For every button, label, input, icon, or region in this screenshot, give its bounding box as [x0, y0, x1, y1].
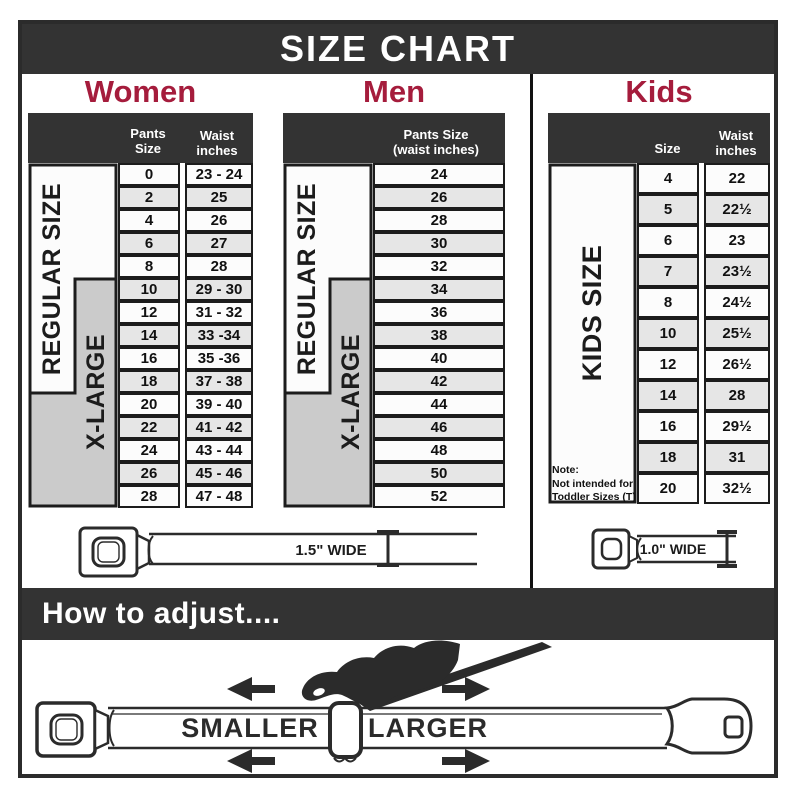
women-size-table: Pants Size Waist inches REGULAR SIZE X-L… — [28, 113, 253, 513]
x-large-label: X-LARGE — [337, 334, 365, 450]
table-row: 14 33 -34 — [118, 324, 253, 347]
size-chart-poster: SIZE CHART Women Pants Size Waist inches… — [18, 20, 778, 778]
waist-cell: 28 — [704, 380, 770, 411]
women-col-header-pants-size: Pants Size — [116, 127, 180, 157]
seatbelt-buckle-icon — [593, 530, 637, 568]
waist-cell: 27 — [185, 232, 253, 255]
waist-cell: 24½ — [704, 287, 770, 318]
table-row: 22 41 - 42 — [118, 416, 253, 439]
table-row: 28 47 - 48 — [118, 485, 253, 508]
size-cell: 7 — [637, 256, 699, 287]
belt-width-label: 1.0" WIDE — [640, 541, 707, 557]
men-col-header-pants-size: Pants Size (waist inches) — [371, 128, 501, 158]
pants-size-cell: 28 — [373, 209, 505, 232]
waist-cell: 23½ — [704, 256, 770, 287]
hand-icon — [302, 641, 460, 708]
kids-fit-labels: KIDS SIZE Note: Not intended for Toddler… — [548, 163, 637, 509]
size-cell: 10 — [637, 318, 699, 349]
pants-size-cell: 30 — [373, 232, 505, 255]
kids-table-body: KIDS SIZE Note: Not intended for Toddler… — [548, 163, 770, 509]
adult-belt-illustration: 1.5" WIDE — [58, 520, 508, 584]
waist-cell: 35 -36 — [185, 347, 253, 370]
waist-cell: 31 - 32 — [185, 301, 253, 324]
table-row: 50 — [373, 462, 505, 485]
size-cell: 16 — [637, 411, 699, 442]
pants-size-cell: 20 — [118, 393, 180, 416]
waist-cell: 26½ — [704, 349, 770, 380]
width-marker-icon — [377, 532, 399, 565]
table-row: 18 31 — [637, 442, 770, 473]
adjustment-illustration: SMALLER LARGER — [22, 640, 774, 774]
pants-size-cell: 36 — [373, 301, 505, 324]
pants-size-cell: 52 — [373, 485, 505, 508]
pants-size-cell: 46 — [373, 416, 505, 439]
waist-cell: 25 — [185, 186, 253, 209]
table-row: 10 29 - 30 — [118, 278, 253, 301]
women-table-body: REGULAR SIZE X-LARGE 0 23 - 24 2 — [28, 163, 253, 513]
table-row: 8 28 — [118, 255, 253, 278]
page-title: SIZE CHART — [280, 28, 516, 70]
pants-size-cell: 32 — [373, 255, 505, 278]
waist-cell: 37 - 38 — [185, 370, 253, 393]
size-cell: 4 — [637, 163, 699, 194]
pants-size-cell: 18 — [118, 370, 180, 393]
waist-cell: 39 - 40 — [185, 393, 253, 416]
table-row: 28 — [373, 209, 505, 232]
section-divider — [530, 74, 533, 588]
women-heading: Women — [28, 75, 253, 111]
table-row: 4 22 — [637, 163, 770, 194]
pants-size-cell: 48 — [373, 439, 505, 462]
men-table-rows: 24 26 28 30 — [373, 163, 505, 513]
pants-size-cell: 8 — [118, 255, 180, 278]
pants-size-cell: 4 — [118, 209, 180, 232]
smaller-label: SMALLER — [181, 713, 319, 743]
size-cell: 14 — [637, 380, 699, 411]
fit-range-graphic: KIDS SIZE — [548, 163, 637, 504]
seatbelt-buckle-icon — [80, 528, 149, 576]
fit-range-graphic: REGULAR SIZE X-LARGE — [28, 163, 118, 508]
men-table-body: REGULAR SIZE X-LARGE 24 26 — [283, 163, 505, 513]
table-row: 42 — [373, 370, 505, 393]
size-cell: 6 — [637, 225, 699, 256]
pants-size-cell: 26 — [373, 186, 505, 209]
table-row: 32 — [373, 255, 505, 278]
table-row: 36 — [373, 301, 505, 324]
table-row: 10 25½ — [637, 318, 770, 349]
pants-size-cell: 24 — [118, 439, 180, 462]
belt-width-label: 1.5" WIDE — [295, 542, 366, 559]
pants-size-cell: 16 — [118, 347, 180, 370]
pants-size-cell: 26 — [118, 462, 180, 485]
pants-size-cell: 40 — [373, 347, 505, 370]
table-row: 2 25 — [118, 186, 253, 209]
table-row: 4 26 — [118, 209, 253, 232]
table-row: 0 23 - 24 — [118, 163, 253, 186]
pants-size-cell: 22 — [118, 416, 180, 439]
table-row: 48 — [373, 439, 505, 462]
regular-size-label: REGULAR SIZE — [38, 183, 66, 375]
pants-size-cell: 28 — [118, 485, 180, 508]
kids-section: Kids Size Waist inches KIDS SIZE Note: — [548, 75, 770, 509]
men-size-table: Pants Size (waist inches) REGULAR SIZE X… — [283, 113, 505, 513]
table-row: 8 24½ — [637, 287, 770, 318]
waist-cell: 47 - 48 — [185, 485, 253, 508]
table-row: 26 — [373, 186, 505, 209]
arrow-left-icon — [227, 749, 275, 773]
waist-cell: 43 - 44 — [185, 439, 253, 462]
women-section: Women Pants Size Waist inches REGULAR SI… — [28, 75, 253, 513]
kids-size-table: Size Waist inches KIDS SIZE Note: Not in… — [548, 113, 770, 509]
kids-note: Note: Not intended for Toddler Sizes (T) — [552, 464, 636, 505]
kids-heading: Kids — [548, 75, 770, 111]
regular-size-label: REGULAR SIZE — [293, 183, 321, 375]
women-col-header-waist: Waist inches — [185, 129, 249, 159]
men-heading: Men — [283, 75, 505, 111]
table-row: 7 23½ — [637, 256, 770, 287]
how-to-adjust-band: How to adjust.... — [22, 588, 774, 640]
waist-cell: 33 -34 — [185, 324, 253, 347]
waist-cell: 28 — [185, 255, 253, 278]
table-row: 12 31 - 32 — [118, 301, 253, 324]
kids-table-rows: 4 22 5 22½ 6 23 — [637, 163, 770, 509]
waist-cell: 45 - 46 — [185, 462, 253, 485]
pants-size-cell: 12 — [118, 301, 180, 324]
table-row: 16 29½ — [637, 411, 770, 442]
kids-col-header-waist: Waist inches — [703, 129, 769, 159]
women-table-header: Pants Size Waist inches — [28, 113, 253, 163]
size-cell: 18 — [637, 442, 699, 473]
x-large-label: X-LARGE — [82, 334, 110, 450]
pants-size-cell: 34 — [373, 278, 505, 301]
pants-size-cell: 0 — [118, 163, 180, 186]
table-row: 6 23 — [637, 225, 770, 256]
table-row: 14 28 — [637, 380, 770, 411]
table-row: 24 43 - 44 — [118, 439, 253, 462]
waist-cell: 29 - 30 — [185, 278, 253, 301]
arrow-right-icon — [442, 749, 490, 773]
kids-size-label: KIDS SIZE — [577, 245, 607, 382]
seatbelt-buckle-icon — [37, 703, 108, 756]
waist-cell: 25½ — [704, 318, 770, 349]
larger-label: LARGER — [368, 713, 488, 743]
men-fit-labels: REGULAR SIZE X-LARGE — [283, 163, 373, 513]
waist-cell: 22½ — [704, 194, 770, 225]
pants-size-cell: 10 — [118, 278, 180, 301]
kids-belt-illustration: 1.0" WIDE — [578, 520, 758, 584]
waist-cell: 23 - 24 — [185, 163, 253, 186]
waist-cell: 26 — [185, 209, 253, 232]
table-row: 12 26½ — [637, 349, 770, 380]
table-row: 20 32½ — [637, 473, 770, 504]
table-row: 44 — [373, 393, 505, 416]
table-row: 38 — [373, 324, 505, 347]
pants-size-cell: 44 — [373, 393, 505, 416]
table-row: 20 39 - 40 — [118, 393, 253, 416]
pants-size-cell: 6 — [118, 232, 180, 255]
kids-col-header-size: Size — [635, 142, 700, 157]
how-to-adjust-heading: How to adjust.... — [42, 597, 281, 631]
arrow-left-icon — [227, 677, 275, 701]
table-row: 6 27 — [118, 232, 253, 255]
size-cell: 20 — [637, 473, 699, 504]
belt-tip-icon — [667, 699, 751, 753]
table-row: 34 — [373, 278, 505, 301]
table-row: 5 22½ — [637, 194, 770, 225]
waist-cell: 23 — [704, 225, 770, 256]
table-row: 46 — [373, 416, 505, 439]
title-band: SIZE CHART — [22, 24, 774, 74]
pants-size-cell: 50 — [373, 462, 505, 485]
waist-cell: 32½ — [704, 473, 770, 504]
table-row: 26 45 - 46 — [118, 462, 253, 485]
waist-cell: 31 — [704, 442, 770, 473]
men-table-header: Pants Size (waist inches) — [283, 113, 505, 163]
pants-size-cell: 42 — [373, 370, 505, 393]
pants-size-cell: 14 — [118, 324, 180, 347]
kids-table-header: Size Waist inches — [548, 113, 770, 163]
pants-size-cell: 24 — [373, 163, 505, 186]
table-row: 40 — [373, 347, 505, 370]
table-row: 52 — [373, 485, 505, 508]
table-row: 18 37 - 38 — [118, 370, 253, 393]
size-cell: 8 — [637, 287, 699, 318]
men-section: Men Pants Size (waist inches) REGULAR SI… — [283, 75, 505, 513]
waist-cell: 22 — [704, 163, 770, 194]
pants-size-cell: 2 — [118, 186, 180, 209]
belt-slider-icon — [330, 703, 361, 762]
pants-size-cell: 38 — [373, 324, 505, 347]
women-fit-labels: REGULAR SIZE X-LARGE — [28, 163, 118, 513]
fit-range-graphic: REGULAR SIZE X-LARGE — [283, 163, 373, 508]
women-table-rows: 0 23 - 24 2 25 4 26 — [118, 163, 253, 513]
waist-cell: 29½ — [704, 411, 770, 442]
table-row: 16 35 -36 — [118, 347, 253, 370]
waist-cell: 41 - 42 — [185, 416, 253, 439]
size-cell: 5 — [637, 194, 699, 225]
table-row: 30 — [373, 232, 505, 255]
table-row: 24 — [373, 163, 505, 186]
size-cell: 12 — [637, 349, 699, 380]
